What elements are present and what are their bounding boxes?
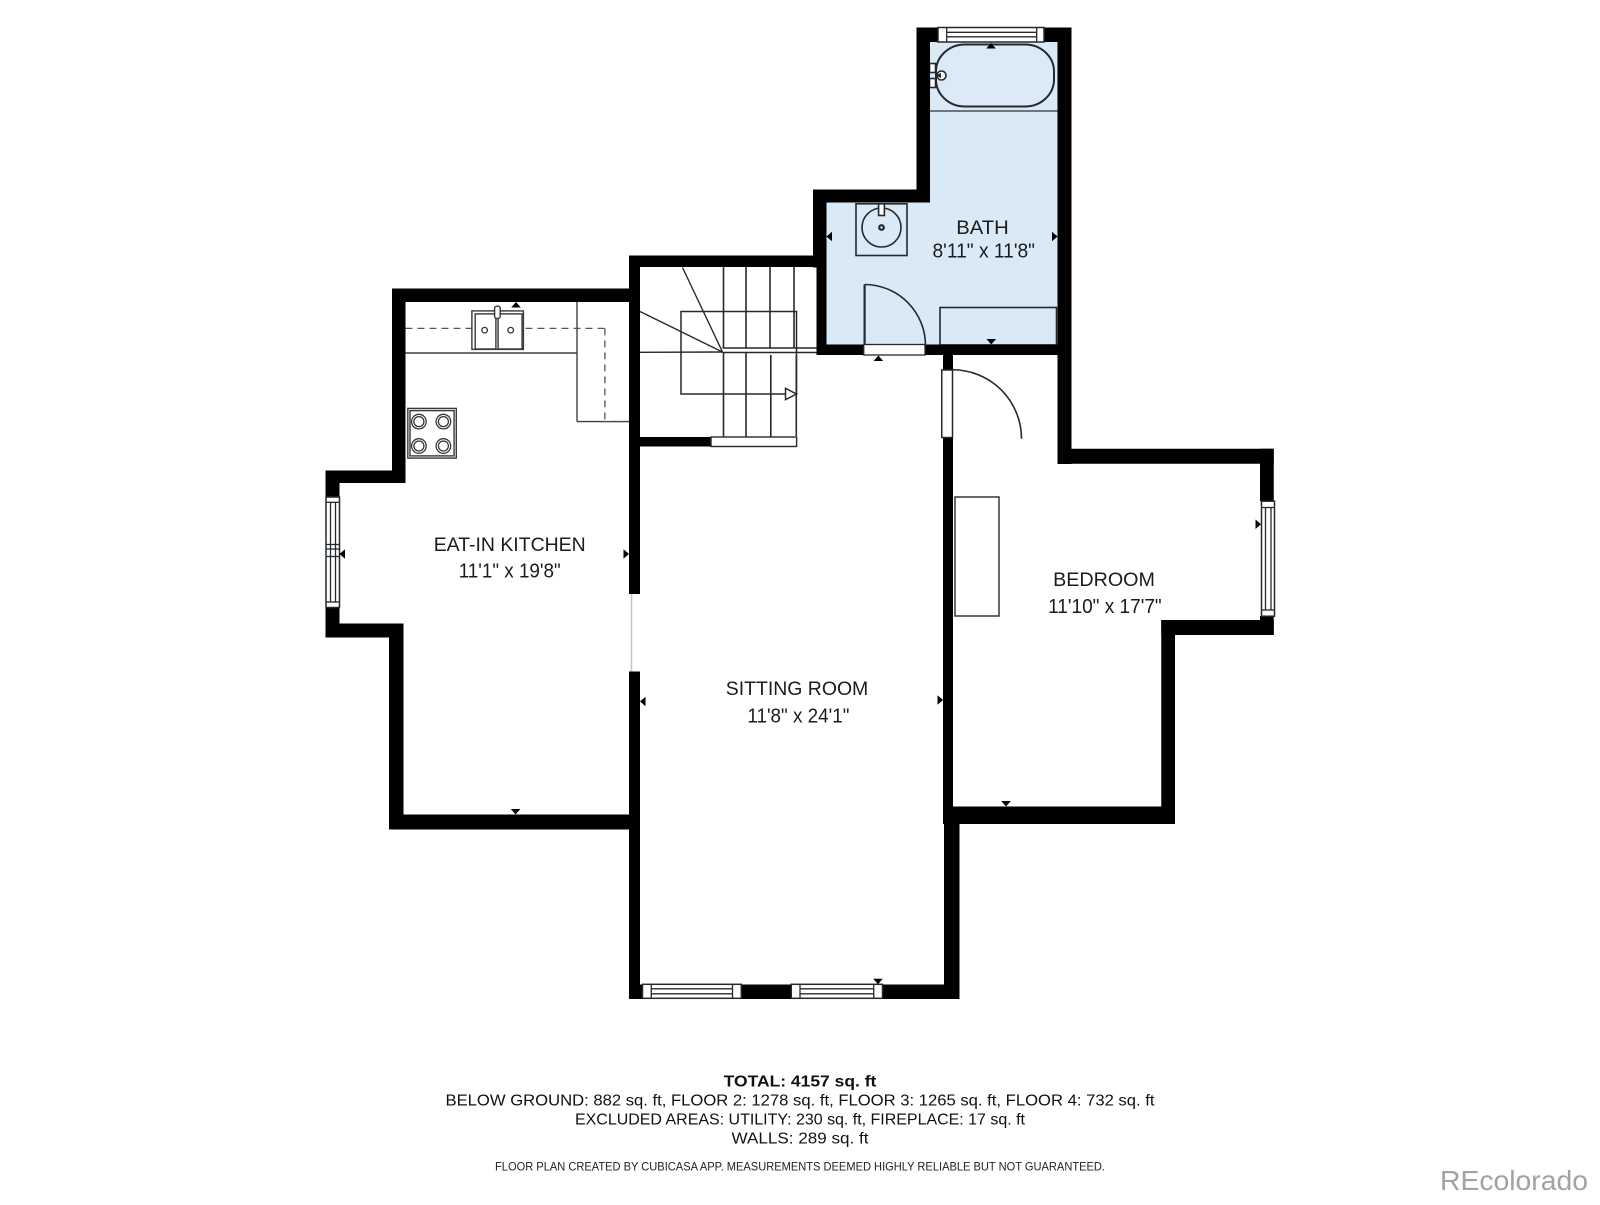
svg-text:EXCLUDED AREAS: UTILITY: 230 s: EXCLUDED AREAS: UTILITY: 230 sq. ft, FIR…: [575, 1112, 1026, 1129]
svg-text:REcolorado: REcolorado: [1440, 1165, 1588, 1196]
svg-text:BEDROOM: BEDROOM: [1053, 569, 1155, 591]
svg-text:BATH: BATH: [956, 217, 1009, 239]
svg-text:WALLS: 289 sq. ft: WALLS: 289 sq. ft: [732, 1131, 870, 1148]
svg-text:BELOW GROUND: 882 sq. ft, FLOO: BELOW GROUND: 882 sq. ft, FLOOR 2: 1278 …: [446, 1093, 1156, 1110]
svg-text:11'1" x 19'8": 11'1" x 19'8": [459, 561, 561, 583]
svg-text:11'8" x 24'1": 11'8" x 24'1": [747, 706, 849, 728]
svg-text:TOTAL: 4157 sq. ft: TOTAL: 4157 sq. ft: [724, 1074, 877, 1091]
svg-text:SITTING ROOM: SITTING ROOM: [726, 678, 869, 700]
svg-text:8'11" x 11'8": 8'11" x 11'8": [933, 241, 1036, 263]
svg-text:11'10" x 17'7": 11'10" x 17'7": [1048, 596, 1162, 618]
svg-text:FLOOR PLAN CREATED BY CUBICASA: FLOOR PLAN CREATED BY CUBICASA APP. MEAS…: [495, 1159, 1105, 1173]
svg-text:EAT-IN KITCHEN: EAT-IN KITCHEN: [434, 534, 586, 556]
